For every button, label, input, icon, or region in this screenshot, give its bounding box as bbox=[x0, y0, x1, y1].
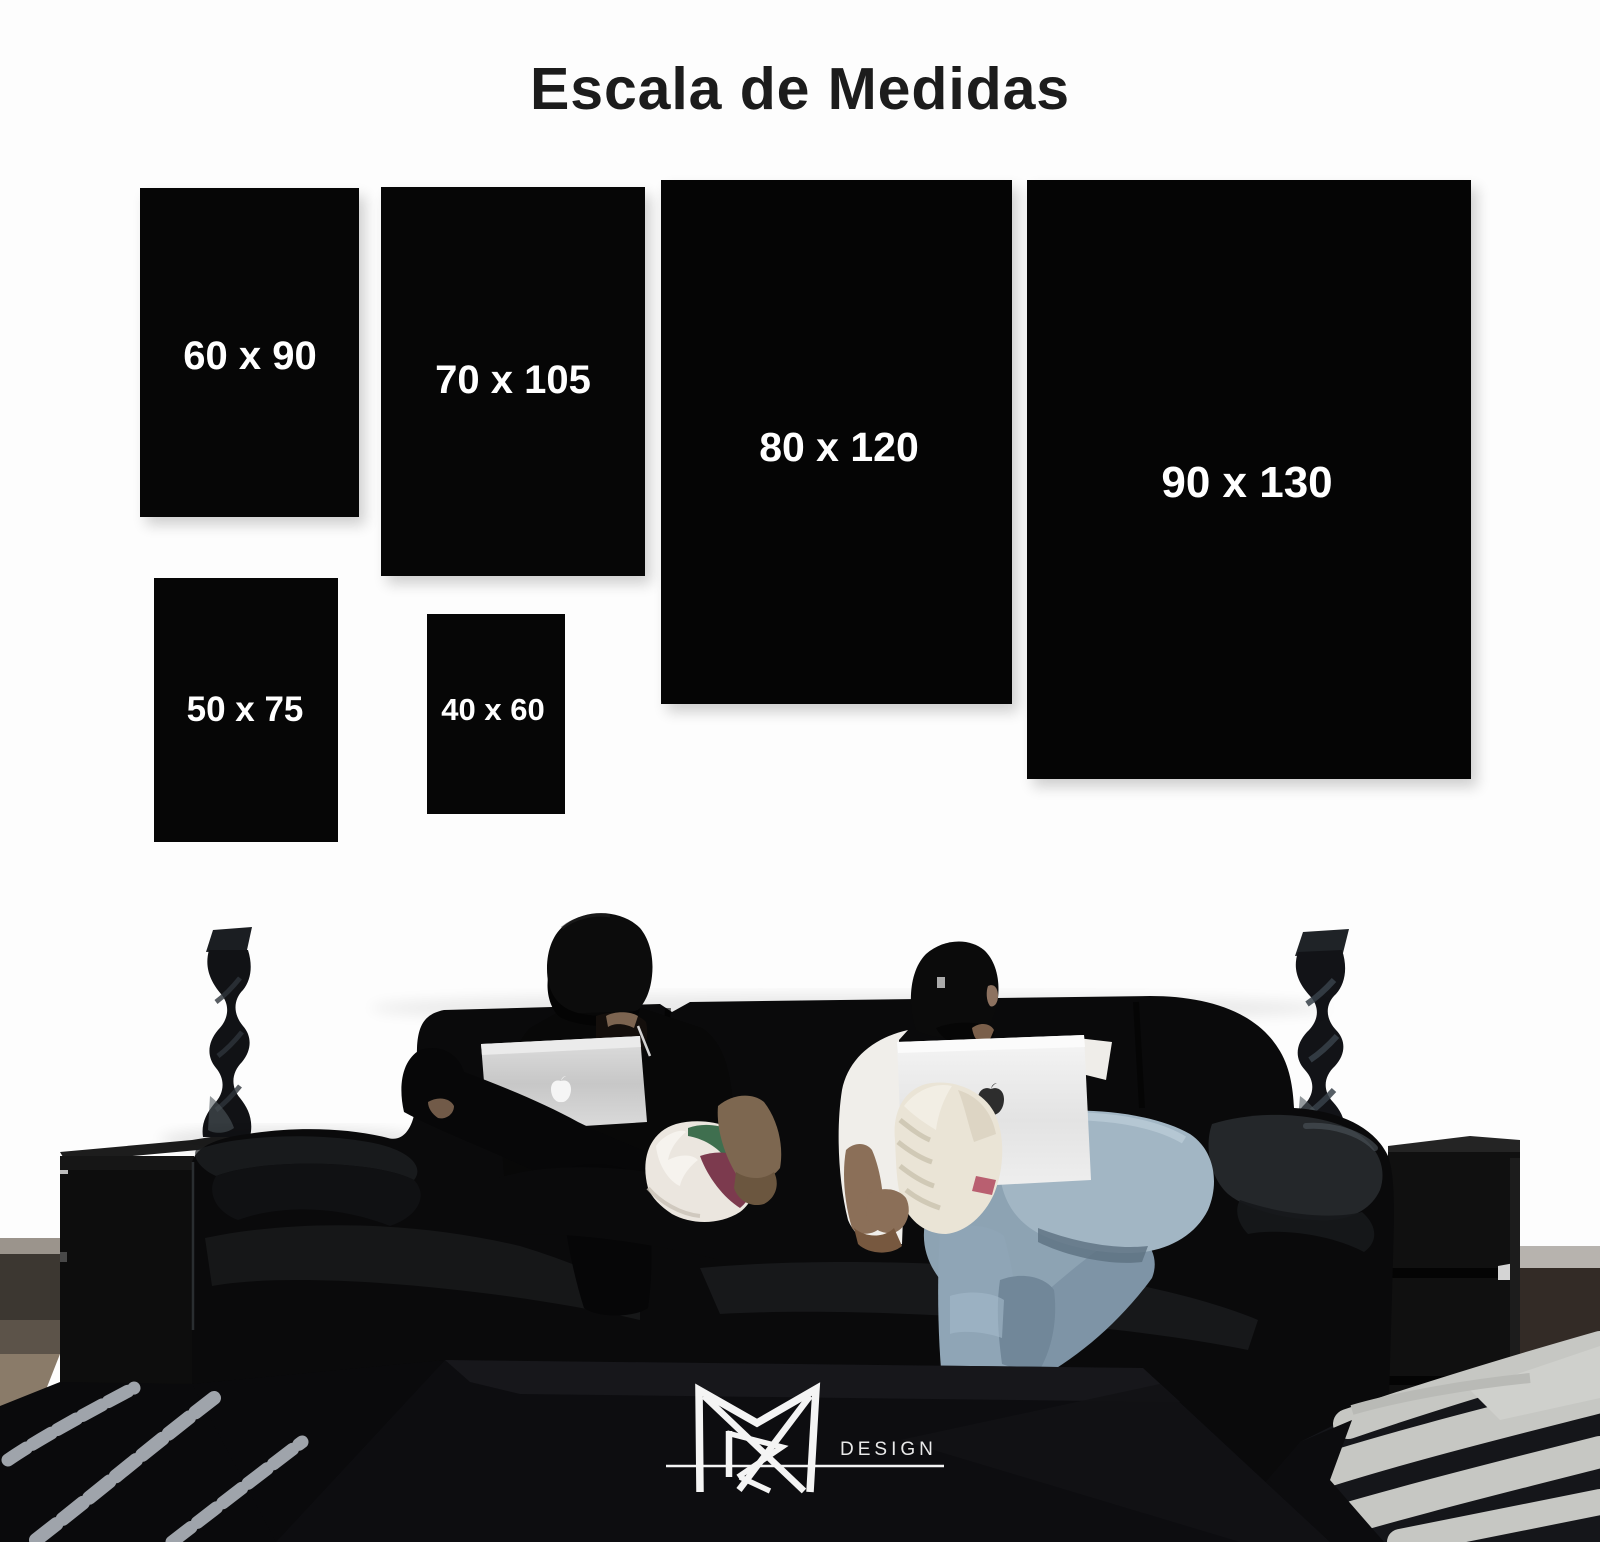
svg-text:80 x 120: 80 x 120 bbox=[759, 424, 919, 470]
svg-text:Escala de Medidas: Escala de Medidas bbox=[530, 56, 1070, 122]
svg-text:40 x 60: 40 x 60 bbox=[441, 692, 544, 727]
svg-text:60 x 90: 60 x 90 bbox=[183, 334, 316, 378]
svg-text:DESIGN: DESIGN bbox=[840, 1439, 937, 1460]
svg-text:90 x 130: 90 x 130 bbox=[1161, 458, 1332, 507]
svg-text:50 x 75: 50 x 75 bbox=[187, 690, 304, 729]
svg-text:70 x 105: 70 x 105 bbox=[435, 358, 591, 402]
